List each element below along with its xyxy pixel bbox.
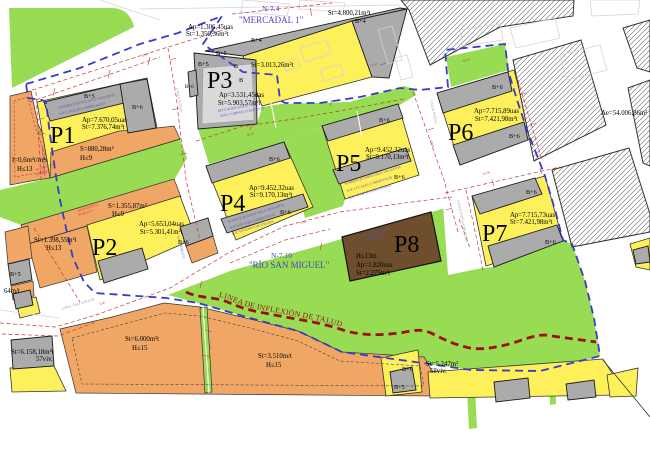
svg-text:B+4: B+4	[251, 37, 262, 44]
svg-text:P8: P8	[394, 232, 419, 258]
svg-text:P7: P7	[482, 221, 507, 247]
svg-text:H≤15: H≤15	[132, 345, 148, 352]
svg-text:B+6: B+6	[394, 174, 405, 181]
svg-text:St=4.800,21m²t: St=4.800,21m²t	[328, 10, 371, 17]
svg-text:H≤13: H≤13	[46, 245, 62, 252]
svg-text:St=2.275m²t: St=2.275m²t	[356, 270, 390, 277]
svg-text:B+6: B+6	[509, 133, 520, 140]
svg-text:B+6: B+6	[280, 209, 291, 216]
svg-text:St=5.247m²: St=5.247m²	[426, 361, 458, 368]
svg-text:Ap=7.715,73uas: Ap=7.715,73uas	[510, 212, 555, 219]
svg-text:B+6: B+6	[545, 239, 556, 246]
svg-text:B+5: B+5	[198, 61, 209, 68]
svg-text:H≤9: H≤9	[80, 155, 93, 162]
svg-text:St=1.398,55m²t: St=1.398,55m²t	[34, 237, 77, 244]
svg-text:St=5.301,41m²t: St=5.301,41m²t	[140, 229, 183, 236]
svg-text:St=3.510m/t: St=3.510m/t	[258, 353, 292, 360]
svg-text:Ap=3.531,45uas: Ap=3.531,45uas	[219, 92, 264, 99]
svg-text:P4: P4	[220, 191, 245, 217]
svg-text:B+5: B+5	[10, 271, 21, 278]
svg-text:B+6: B+6	[402, 366, 413, 373]
svg-text:Ae=54.006,86m²: Ae=54.006,86m²	[601, 110, 647, 117]
svg-text:St=6.000m²t: St=6.000m²t	[125, 336, 159, 343]
svg-text:St=9.170,13m²t: St=9.170,13m²t	[250, 192, 293, 199]
svg-text:St=9.170,13m²t: St=9.170,13m²t	[366, 154, 409, 161]
svg-text:64m/t: 64m/t	[4, 288, 20, 295]
svg-text:P6: P6	[448, 120, 473, 146]
svg-text:B+6: B+6	[269, 156, 280, 163]
svg-text:B+6: B+6	[526, 189, 537, 196]
svg-text:H≤13m: H≤13m	[356, 253, 377, 260]
svg-text:Ap=7.715,89uas: Ap=7.715,89uas	[474, 108, 519, 115]
svg-text:"MERCADAL 1": "MERCADAL 1"	[239, 15, 304, 25]
svg-text:Ap=1.820uas: Ap=1.820uas	[356, 262, 393, 269]
svg-text:B+6: B+6	[185, 85, 194, 90]
svg-text:"RÍO SAN MIGUEL": "RÍO SAN MIGUEL"	[249, 260, 330, 270]
svg-text:I=0,6m²t/m²s: I=0,6m²t/m²s	[12, 157, 48, 164]
svg-text:St=6.158,18m²t: St=6.158,18m²t	[11, 349, 54, 356]
svg-text:H≤13: H≤13	[17, 166, 33, 173]
svg-text:St=1.356,36m²t: St=1.356,36m²t	[186, 31, 229, 38]
svg-text:B: B	[234, 63, 238, 70]
svg-text:B+4: B+4	[355, 18, 366, 25]
svg-text:B: B	[239, 77, 243, 84]
svg-text:P1: P1	[50, 123, 75, 149]
svg-text:St=7.421,98m²t: St=7.421,98m²t	[510, 219, 553, 226]
svg-text:N-7.4: N-7.4	[262, 4, 280, 13]
svg-text:St=3.013,26m²t: St=3.013,26m²t	[251, 62, 294, 69]
svg-text:N-7.10: N-7.10	[271, 251, 292, 260]
svg-text:S=880,28m²: S=880,28m²	[80, 146, 114, 153]
svg-text:H≤15: H≤15	[266, 362, 282, 369]
svg-text:57viv.: 57viv.	[36, 356, 53, 363]
svg-text:St=7.376,74m²t: St=7.376,74m²t	[82, 124, 125, 131]
svg-text:Ap=5.653,04uas: Ap=5.653,04uas	[139, 221, 184, 228]
svg-text:B+5: B+5	[216, 50, 227, 57]
svg-text:P3: P3	[207, 68, 232, 94]
svg-text:Ap=7.670,05uas: Ap=7.670,05uas	[82, 117, 127, 124]
svg-text:B+5: B+5	[394, 384, 405, 391]
svg-text:Ap=9.452,32uas: Ap=9.452,32uas	[365, 147, 410, 154]
svg-text:Ap=9.452,32uas: Ap=9.452,32uas	[249, 185, 294, 192]
svg-text:Ap=1.306,45uas: Ap=1.306,45uas	[188, 24, 233, 31]
svg-text:P5: P5	[336, 151, 361, 177]
svg-text:B+6: B+6	[492, 84, 503, 91]
svg-text:B+6: B+6	[379, 117, 390, 124]
svg-text:S=1.355,87m²: S=1.355,87m²	[108, 203, 147, 210]
svg-text:58viv.: 58viv.	[430, 368, 447, 375]
svg-text:St=7.421,98m²t: St=7.421,98m²t	[475, 116, 518, 123]
svg-text:H≤9: H≤9	[112, 211, 125, 218]
svg-text:B+6: B+6	[132, 104, 143, 111]
svg-text:P2: P2	[92, 235, 117, 261]
